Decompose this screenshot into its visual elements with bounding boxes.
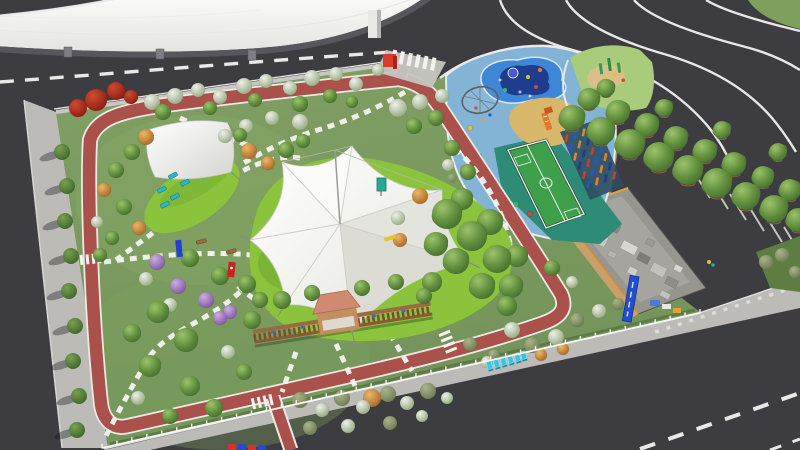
tree [354, 280, 370, 296]
tree [457, 221, 487, 251]
climber-dot [481, 118, 484, 121]
tree [108, 162, 124, 178]
fence-post [370, 383, 371, 388]
tree [198, 292, 214, 308]
tree [346, 96, 358, 108]
tree [91, 216, 103, 228]
tree [155, 104, 171, 120]
fence-post [610, 329, 611, 334]
tree [391, 211, 405, 225]
building-pier [64, 47, 72, 57]
fence-post [131, 437, 132, 442]
tree [252, 292, 268, 308]
fence-post [445, 366, 446, 371]
tree [69, 99, 87, 117]
fence-post [236, 414, 237, 419]
row-tree [752, 166, 774, 188]
fence-post [355, 387, 356, 392]
tree [329, 67, 343, 81]
fence-post [266, 407, 267, 412]
tree [149, 254, 165, 270]
street-tree [69, 422, 85, 438]
street-tree [71, 388, 87, 404]
fence-post [326, 393, 327, 398]
splash-toy-dot [534, 85, 538, 89]
tree [469, 273, 495, 299]
tree [372, 64, 384, 76]
tree [341, 419, 355, 433]
water-splash [519, 91, 522, 94]
tree [167, 88, 183, 104]
water-splash [529, 95, 532, 98]
fence-post [146, 434, 147, 439]
fence-post [490, 356, 491, 361]
row-tree [587, 117, 615, 145]
row-tree [655, 99, 673, 117]
tree [428, 110, 444, 126]
tree [124, 144, 140, 160]
tree [416, 288, 432, 304]
fence-post [625, 326, 626, 331]
fence-post [699, 309, 700, 314]
fence-post [311, 397, 312, 402]
water-splash [499, 79, 502, 82]
tree [139, 355, 161, 377]
fence-post [341, 390, 342, 395]
tree [296, 134, 310, 148]
splash-toy-dot [503, 88, 507, 92]
tree [544, 260, 560, 276]
tree [435, 89, 449, 103]
tree [238, 275, 256, 293]
climber-dot [488, 113, 491, 116]
tree [349, 77, 363, 91]
tree [292, 114, 308, 130]
tree [504, 322, 520, 338]
street-tree [65, 353, 81, 369]
tree [170, 278, 186, 294]
tree [259, 74, 273, 88]
building-pier [248, 50, 256, 60]
climber-dot [474, 106, 477, 109]
tree [241, 143, 257, 159]
row-tree [673, 155, 703, 185]
tree [388, 274, 404, 290]
tree [400, 396, 414, 410]
fence-post [281, 404, 282, 409]
row-tree [760, 195, 788, 223]
fence-post [251, 410, 252, 415]
tree [416, 410, 428, 422]
tree [261, 156, 275, 170]
entrance-letter [238, 444, 246, 450]
tree [131, 391, 145, 405]
fence-post [116, 441, 117, 446]
fence-post [684, 312, 685, 317]
entrance-letter [258, 445, 266, 450]
splash-pool-navy [500, 65, 550, 95]
tree [570, 313, 584, 327]
hedge-bush [775, 248, 789, 262]
tree [236, 364, 252, 380]
tree [278, 142, 294, 158]
fence-post [595, 333, 596, 338]
street-tree [59, 178, 75, 194]
fence-post [654, 319, 655, 324]
tree [460, 164, 476, 180]
fence-post [520, 350, 521, 355]
tree [420, 383, 436, 399]
teal-info-sign [377, 178, 386, 191]
tree [203, 101, 217, 115]
park-aerial-render [0, 0, 800, 450]
street-tree [67, 318, 83, 334]
tree [147, 301, 169, 323]
fence-post [580, 336, 581, 341]
tree [389, 99, 407, 117]
row-tree [559, 105, 585, 131]
building-pillar-shade [377, 10, 381, 38]
tree [138, 129, 154, 145]
tree [132, 221, 146, 235]
tree [283, 81, 297, 95]
tree [191, 83, 205, 97]
splash-dome [508, 68, 518, 78]
scene-svg [0, 0, 800, 450]
tree [383, 416, 397, 430]
row-tree [702, 168, 732, 198]
splash-toy-dot [526, 75, 530, 79]
building-pier [156, 49, 164, 59]
tree [412, 188, 428, 204]
row-tree [732, 182, 760, 210]
tree [221, 345, 235, 359]
fence-post [669, 316, 670, 321]
row-tree [769, 143, 787, 161]
tree [497, 296, 517, 316]
tree [535, 349, 547, 361]
fence-post [206, 420, 207, 425]
tree [406, 118, 422, 134]
tree [116, 199, 132, 215]
fence-post [161, 431, 162, 436]
row-tree [615, 129, 645, 159]
tree [93, 248, 107, 262]
entrance-letter [248, 445, 256, 450]
entrance-letter [228, 444, 236, 450]
fence-post [475, 360, 476, 365]
street-tree [57, 213, 73, 229]
tree [323, 89, 337, 103]
tree [123, 324, 141, 342]
street-tree [63, 248, 79, 264]
tree [443, 248, 469, 274]
fence-post [565, 339, 566, 344]
tree [432, 199, 462, 229]
tree [424, 232, 448, 256]
tree [304, 285, 320, 301]
fence-post [415, 373, 416, 378]
tree [548, 329, 564, 345]
tree [592, 304, 606, 318]
tree [139, 272, 153, 286]
tree [499, 274, 523, 298]
row-tree [644, 142, 674, 172]
play-equipment-dot [527, 211, 532, 216]
red-sculpture-mark [230, 267, 233, 270]
fence-post [640, 323, 641, 328]
tree [292, 96, 308, 112]
tree [265, 111, 279, 125]
tree [292, 392, 308, 408]
tree [181, 249, 199, 267]
street-tree [54, 144, 70, 160]
tree [218, 129, 232, 143]
fence-post [101, 444, 102, 449]
fence-post [505, 353, 506, 358]
tree [85, 89, 107, 111]
tree [174, 328, 198, 352]
fence-post [550, 343, 551, 348]
tree [211, 267, 229, 285]
tree [162, 408, 178, 424]
tree [444, 140, 460, 156]
entrance-red-cube-side [393, 56, 397, 69]
pedestrian-dot [707, 260, 711, 264]
tree [105, 231, 119, 245]
tree [304, 70, 320, 86]
tree [380, 386, 396, 402]
fence-post [176, 427, 177, 432]
tree [124, 90, 138, 104]
tree [483, 245, 511, 273]
tree [180, 376, 200, 396]
fence-post [535, 346, 536, 351]
play-equipment-dot [467, 125, 472, 130]
tree [236, 78, 252, 94]
fence-post [430, 370, 431, 375]
pedestrian-dot [711, 263, 715, 267]
tree [107, 82, 125, 100]
row-tree [578, 88, 600, 110]
tree [412, 94, 428, 110]
rock-shrub [448, 174, 457, 183]
tree [441, 392, 453, 404]
tree [356, 400, 370, 414]
tree [248, 93, 262, 107]
tree [243, 311, 261, 329]
fence-post [460, 363, 461, 368]
tree [273, 291, 291, 309]
row-tree [713, 121, 731, 139]
tree [213, 311, 227, 325]
tree [566, 276, 578, 288]
tree [463, 337, 477, 351]
hedge-bush [759, 255, 773, 269]
fence-post [296, 400, 297, 405]
fence-post [191, 424, 192, 429]
tree [213, 90, 227, 104]
street-tree [61, 283, 77, 299]
tree [97, 183, 111, 197]
tree [303, 421, 317, 435]
tree [612, 298, 624, 310]
tree [315, 403, 329, 417]
tree [205, 399, 223, 417]
fence-post [385, 380, 386, 385]
tree [233, 128, 247, 142]
tree [442, 159, 454, 171]
fence-post [221, 417, 222, 422]
splash-toy-dot [538, 68, 542, 72]
fence-post [400, 377, 401, 382]
